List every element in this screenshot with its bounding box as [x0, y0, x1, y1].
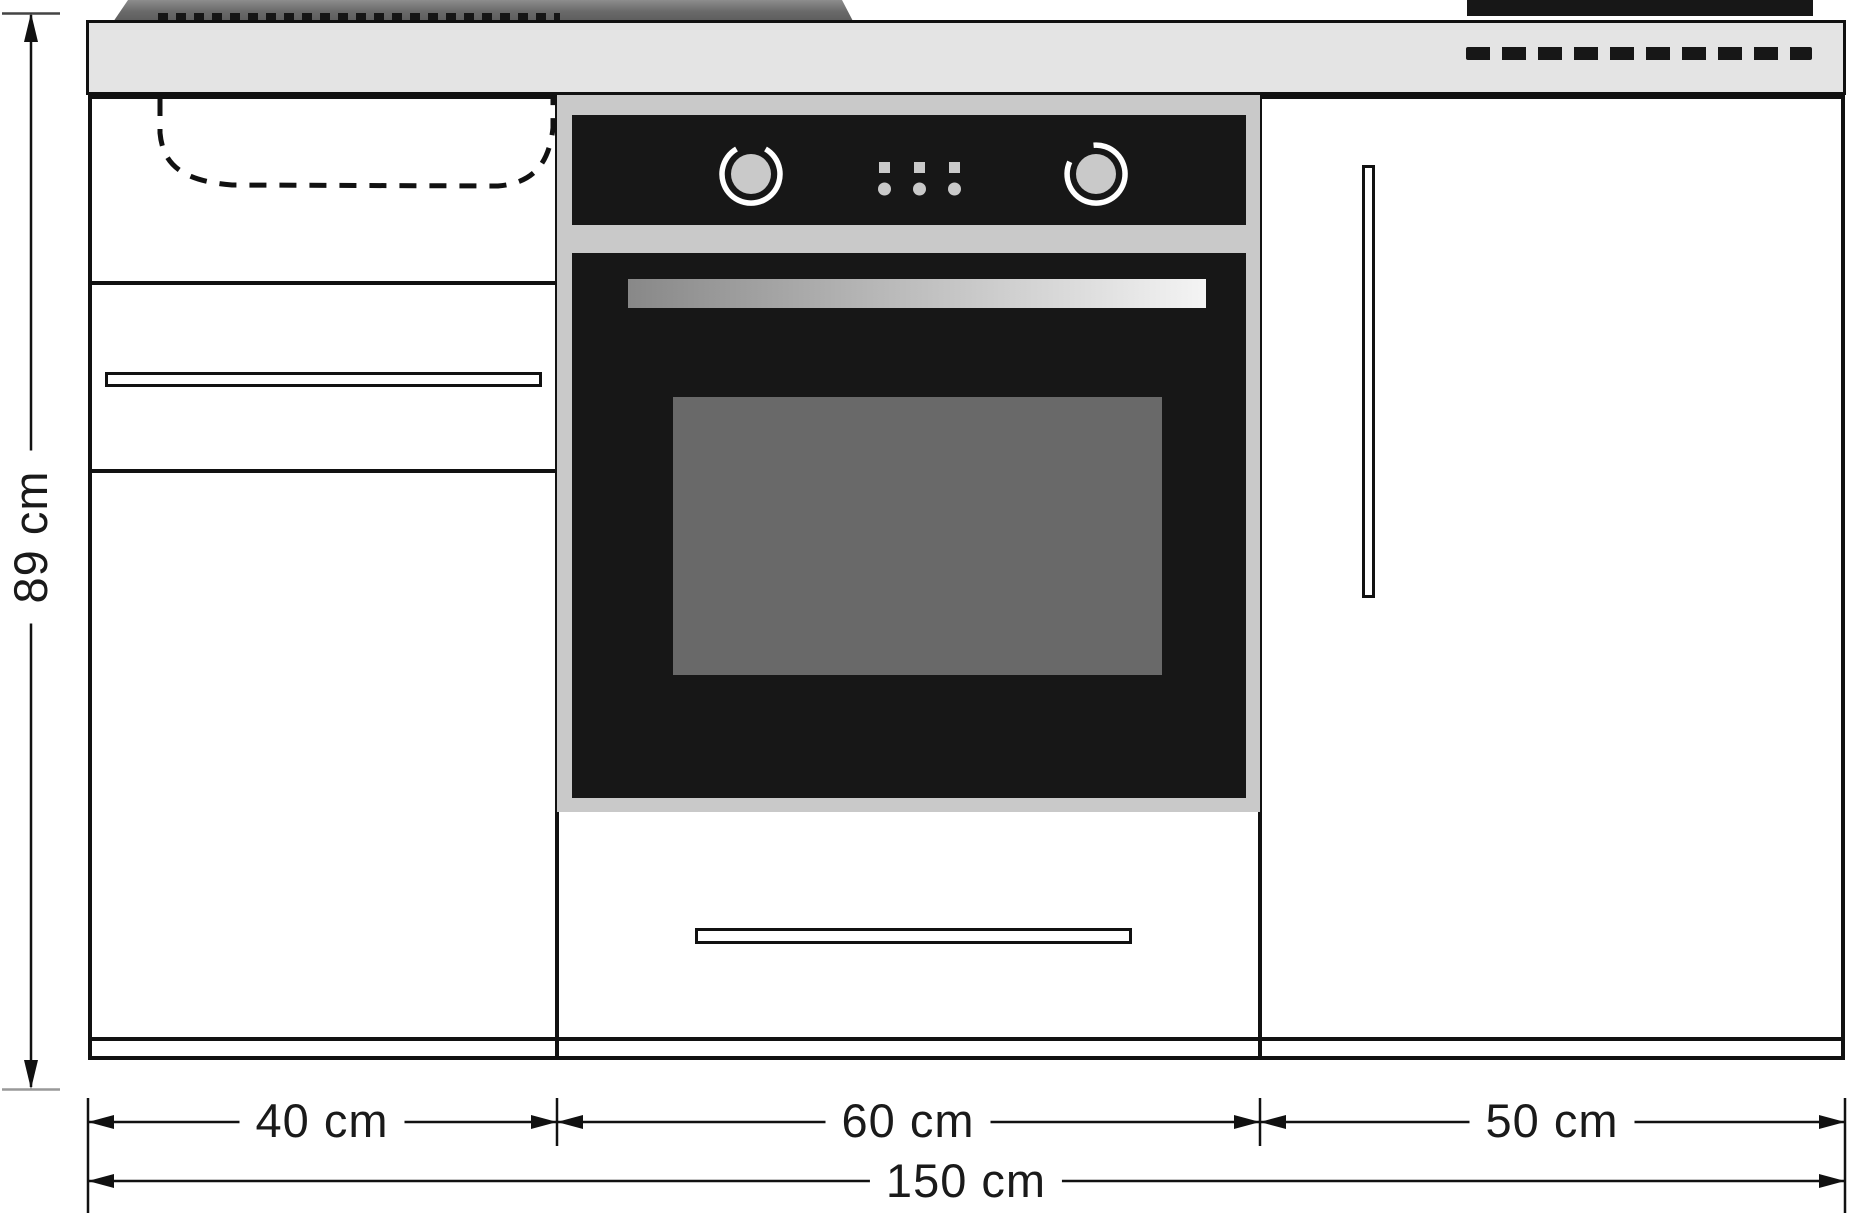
- cooktop-dashed-outline: [1466, 47, 1812, 60]
- left-width-dimension-label: 40 cm: [240, 1093, 405, 1149]
- oven-door-window: [673, 397, 1162, 675]
- oven-door-handle: [628, 279, 1206, 308]
- arrowhead-down: [24, 1060, 38, 1089]
- kitchen-unit-elevation-diagram: 89 cm 40 cm 60 cm 50 cm 150 cm: [0, 0, 1861, 1213]
- cooktop-back-edge: [1467, 0, 1813, 16]
- arrowhead-up: [24, 13, 38, 42]
- left-drawer-handle: [105, 372, 542, 387]
- height-dimension-label: 89 cm: [3, 451, 59, 624]
- sink-front-bottom-line: [88, 281, 557, 285]
- right-width-dimension-label: 50 cm: [1470, 1093, 1635, 1149]
- plinth-line: [88, 1037, 1845, 1041]
- middle-width-dimension-label: 60 cm: [826, 1093, 991, 1149]
- right-door-handle: [1362, 165, 1375, 598]
- total-width-dimension-label: 150 cm: [870, 1153, 1062, 1209]
- drawer-bottom-line: [88, 469, 557, 473]
- oven-control-panel: [572, 115, 1246, 225]
- base-drawer-handle: [695, 928, 1132, 944]
